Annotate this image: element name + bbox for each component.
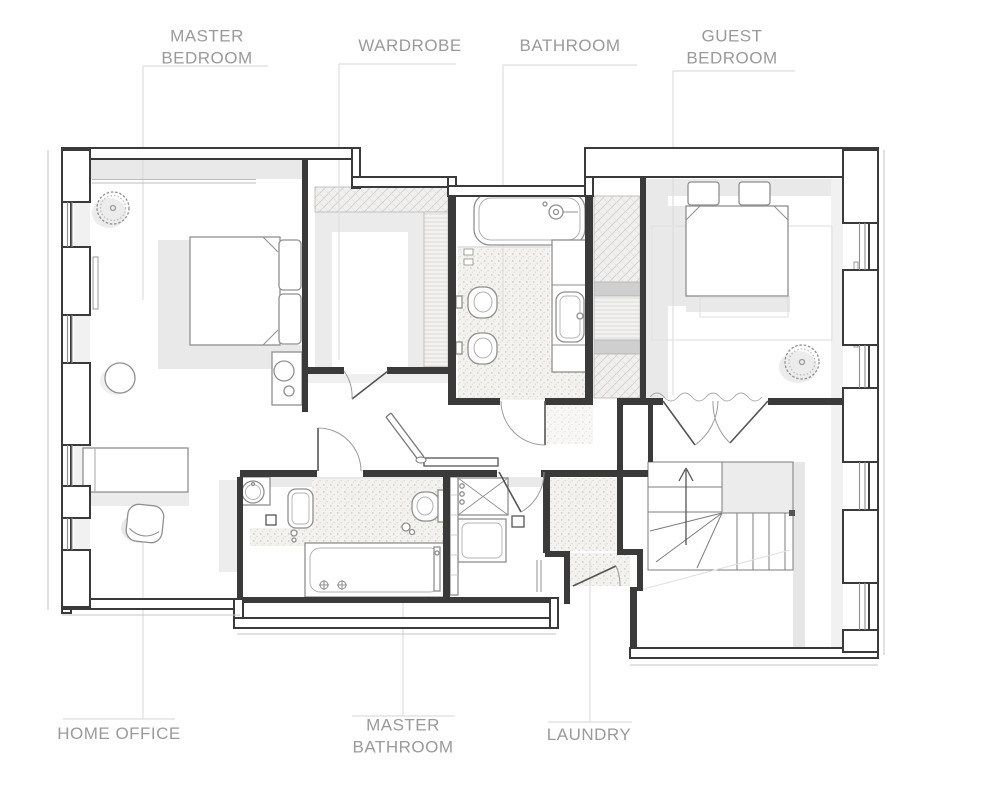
vanity-sink	[552, 240, 588, 372]
nightstand	[272, 352, 302, 405]
bathtub-top	[474, 193, 585, 245]
leaning-ladder	[386, 413, 426, 463]
stool	[105, 363, 135, 393]
laundry-cabinet	[450, 477, 458, 595]
door-arc-master-bathroom	[318, 428, 361, 471]
label-wardrobe: WARDROBE	[358, 35, 462, 57]
label-guest-bedroom: GUEST BEDROOM	[686, 26, 777, 71]
laundry-sink	[458, 519, 506, 562]
label-bathroom: BATHROOM	[520, 35, 621, 57]
floor-plan-page: MASTER BEDROOM WARDROBE BATHROOM GUEST B…	[0, 0, 1000, 792]
label-master-bathroom: MASTER BATHROOM	[353, 715, 454, 760]
door-arc-guest-right	[713, 401, 730, 443]
tap-box	[512, 516, 524, 527]
washing-machine	[458, 478, 508, 515]
desk	[83, 448, 188, 492]
wall-box	[266, 515, 276, 525]
master-bed	[190, 237, 301, 345]
door-arc-bathroom	[501, 401, 545, 445]
radiator-master-bedroom	[93, 257, 98, 309]
office-chair	[125, 503, 165, 544]
floor-plan-drawing	[0, 0, 1000, 792]
label-home-office: HOME OFFICE	[57, 723, 181, 745]
door-leaf-guest-right	[730, 401, 768, 443]
radiator-laundry	[537, 560, 541, 592]
door-arc-guest-left	[695, 401, 718, 445]
hall-bench	[424, 458, 498, 466]
curtain-rail	[92, 180, 256, 184]
label-laundry: LAUNDRY	[547, 724, 631, 746]
up-arrow	[679, 468, 693, 545]
bathtub-master	[305, 543, 445, 597]
round-sink	[240, 477, 270, 505]
door-leaf-guest-left	[663, 401, 695, 445]
label-master-bedroom: MASTER BEDROOM	[161, 26, 252, 71]
